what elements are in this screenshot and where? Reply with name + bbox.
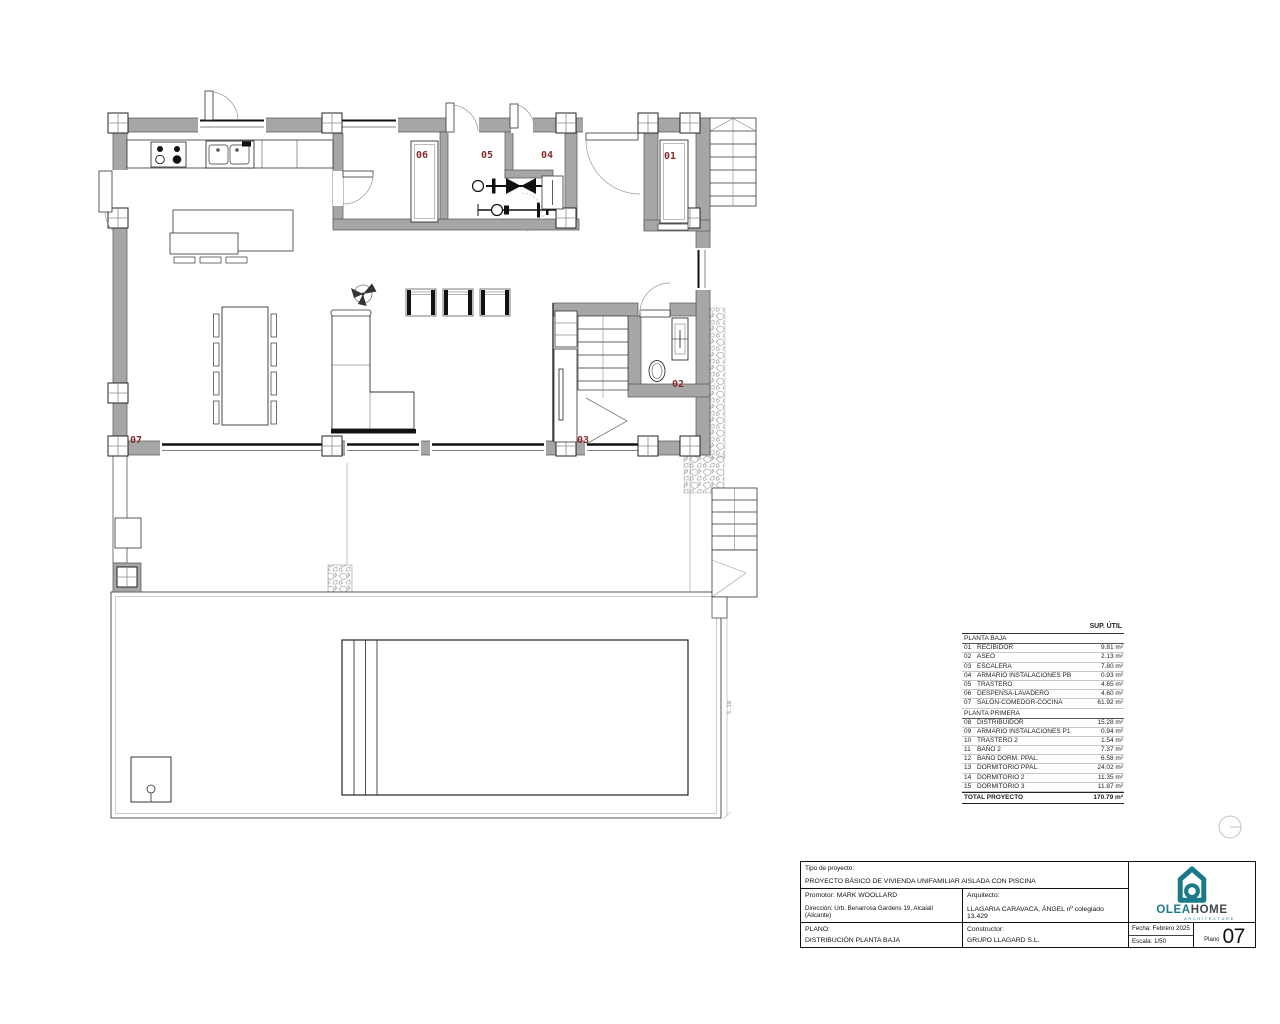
kitchen-island	[170, 210, 293, 263]
door-leaf-04	[510, 104, 518, 128]
reference-circle	[1219, 816, 1241, 838]
address-value: Dirección: Urb. Benarrosa Gardens 19, Al…	[805, 905, 958, 919]
project-type-value: PROYECTO BÁSICO DE VIVIENDA UNIFAMILIAR …	[805, 878, 1124, 885]
planter	[115, 518, 141, 548]
room-label-04: 04	[541, 150, 553, 161]
area-row-value: 11.35 m²	[1080, 774, 1124, 782]
area-row-number: 09	[962, 728, 977, 736]
area-table-row: 10TRASTERO 21.54 m²	[962, 737, 1124, 746]
title-block: Tipo de proyecto: PROYECTO BÁSICO DE VIV…	[800, 861, 1256, 948]
gravel-hatch-terrace	[328, 565, 352, 592]
stool	[174, 257, 195, 263]
ceiling-fan-icon	[351, 284, 377, 307]
section-title: PLANTA BAJA	[962, 634, 1124, 644]
area-row-name: ASEO	[977, 653, 1080, 661]
area-row-name: DORMITORIO 2	[977, 774, 1080, 782]
area-row-name: ARMARIO INSTALACIONES P1	[977, 728, 1080, 736]
promoter-cell: Promotor: MARK WOOLLARD Dirección: Urb. …	[801, 889, 963, 923]
armchair	[443, 289, 473, 316]
area-table-row: 05TRASTERO4.65 m²	[962, 681, 1124, 690]
area-row-value: 2.13 m²	[1080, 653, 1124, 661]
sheet-number: 07	[1223, 927, 1245, 946]
stool	[200, 257, 221, 263]
stool	[226, 257, 247, 263]
area-row-name: SALÓN-COMEDOR-COCINA	[977, 699, 1080, 707]
architect-cell: Arquitecto: LLAGARIA CARAVACA, ÁNGEL nº …	[963, 889, 1129, 923]
area-row-name: BAÑO 2	[977, 746, 1080, 754]
tv-icon	[559, 369, 563, 420]
logo-wordmark: OLEAHOME	[1156, 905, 1227, 916]
area-table-row: 09ARMARIO INSTALACIONES P10.94 m²	[962, 728, 1124, 737]
wall-utility-right	[565, 132, 577, 219]
area-table-row: 03ESCALERA7.80 m²	[962, 663, 1124, 672]
area-table-row: 14DORMITORIO 211.35 m²	[962, 774, 1124, 783]
area-table-row: 02ASEO2.13 m²	[962, 653, 1124, 662]
dining-table	[214, 307, 277, 425]
area-table-row: 07SALÓN-COMEDOR-COCINA61.92 m²	[962, 699, 1124, 708]
armchair	[406, 289, 436, 316]
date-value: Fecha: Febrero 2025	[1129, 923, 1193, 936]
area-row-name: BAÑO DORM. PPAL.	[977, 755, 1080, 763]
wall-stair-aseo	[628, 316, 641, 391]
gravel-hatch-east	[710, 308, 725, 458]
constructor-label: Constructor:	[967, 926, 1124, 933]
section-rows: 08DISTRIBUIDOR15.28 m²09ARMARIO INSTALAC…	[962, 719, 1124, 793]
tv-unit	[554, 311, 577, 442]
area-table-row: 15DORMITORIO 311.87 m²	[962, 783, 1124, 792]
area-row-name: RECIBIDOR	[977, 644, 1080, 652]
company-logo: OLEAHOME ARCHITECTURE	[1129, 862, 1255, 923]
sheet-title-cell: PLANO: DISTRIBUCIÓN PLANTA BAJA	[801, 923, 963, 947]
date-scale-cell: Fecha: Febrero 2025 Escala: 1/50	[1129, 923, 1194, 947]
total-label: TOTAL PROYECTO	[962, 794, 1076, 802]
dimension-label: 5.18	[727, 701, 733, 714]
armchairs	[406, 289, 510, 316]
area-row-value: 7.80 m²	[1080, 663, 1124, 671]
area-table-row: 13DORMITORIO PPAL.24.02 m²	[962, 764, 1124, 773]
toilet-icon	[649, 361, 665, 382]
project-type-label: Tipo de proyecto:	[805, 865, 1124, 872]
wall-divider-06-05	[440, 132, 448, 219]
area-row-name: ESCALERA	[977, 663, 1080, 671]
promoter-value: Promotor: MARK WOOLLARD	[805, 892, 958, 899]
area-row-number: 03	[962, 663, 977, 671]
sheet-title-value: DISTRIBUCIÓN PLANTA BAJA	[805, 937, 958, 944]
area-row-number: 02	[962, 653, 977, 661]
house-logo-icon	[1163, 863, 1221, 903]
architect-label: Arquitecto:	[967, 892, 1124, 899]
area-table-total-row: TOTAL PROYECTO 170.79 m²	[962, 792, 1124, 804]
constructor-cell: Constructor: GRUPO LLAGARD S.L.	[963, 923, 1129, 947]
area-row-number: 13	[962, 764, 977, 772]
section-rows: 01RECIBIDOR9.81 m²02ASEO2.13 m²03ESCALER…	[962, 644, 1124, 708]
wall-entry-left	[644, 132, 658, 230]
area-row-name: ARMARIO INSTALACIONES PB	[977, 672, 1080, 680]
area-row-value: 7.37 m²	[1080, 746, 1124, 754]
area-table-section-planta-primera: PLANTA PRIMERA 08DISTRIBUIDOR15.28 m²09A…	[962, 709, 1124, 793]
room-label-07: 07	[130, 435, 142, 446]
area-table-row: 11BAÑO 27.37 m²	[962, 746, 1124, 755]
area-row-name: DESPENSA-LAVADERO	[977, 690, 1080, 698]
door-leaf-entrance	[586, 133, 638, 140]
area-row-value: 1.54 m²	[1080, 737, 1124, 745]
area-row-name: TRASTERO 2	[977, 737, 1080, 745]
total-value: 170.79 m²	[1076, 794, 1124, 802]
door-leaf-west	[99, 171, 112, 212]
logo-tagline: ARCHITECTURE	[1149, 916, 1235, 921]
area-row-number: 11	[962, 746, 977, 754]
area-row-value: 4.60 m²	[1080, 690, 1124, 698]
sofa	[331, 310, 416, 434]
outdoor-shower	[131, 757, 171, 802]
architect-value: LLAGARIA CARAVACA, ÁNGEL nº colegiado 13…	[967, 906, 1124, 920]
door-leaf-05	[446, 103, 454, 132]
door-leaf-kitchen	[205, 91, 213, 120]
door-leaf-06	[343, 171, 373, 177]
area-row-value: 9.81 m²	[1080, 644, 1124, 652]
area-table: SUP. ÚTIL PLANTA BAJA 01RECIBIDOR9.81 m²…	[962, 623, 1124, 804]
area-table-row: 08DISTRIBUIDOR15.28 m²	[962, 719, 1124, 728]
area-row-value: 24.02 m²	[1080, 764, 1124, 772]
wall-left	[113, 118, 127, 455]
section-title: PLANTA PRIMERA	[962, 709, 1124, 719]
exterior-stair-top	[710, 118, 756, 206]
area-row-value: 4.65 m²	[1080, 681, 1124, 689]
stair-direction-arrow	[586, 398, 627, 444]
area-row-number: 06	[962, 690, 977, 698]
area-row-name: TRASTERO	[977, 681, 1080, 689]
area-table-row: 06DESPENSA-LAVADERO4.60 m²	[962, 690, 1124, 699]
area-row-value: 0.93 m²	[1080, 672, 1124, 680]
area-row-name: DORMITORIO 3	[977, 783, 1080, 791]
area-row-value: 0.94 m²	[1080, 728, 1124, 736]
area-row-value: 15.28 m²	[1080, 719, 1124, 727]
stove-icon	[151, 142, 186, 167]
area-row-number: 14	[962, 774, 977, 782]
room-label-02: 02	[672, 379, 684, 390]
sink-icon	[206, 141, 254, 168]
area-row-number: 04	[962, 672, 977, 680]
area-row-number: 01	[962, 644, 977, 652]
room-label-06: 06	[416, 150, 428, 161]
constructor-value: GRUPO LLAGARD S.L.	[967, 937, 1124, 944]
pool	[342, 640, 688, 795]
room-label-01: 01	[664, 151, 676, 162]
area-row-number: 07	[962, 699, 977, 707]
area-table-header: SUP. ÚTIL	[962, 623, 1124, 634]
sheet-number-label: Plano	[1204, 937, 1219, 943]
area-row-number: 08	[962, 719, 977, 727]
exterior-stair-right	[712, 488, 757, 618]
area-row-value: 61.92 m²	[1080, 699, 1124, 707]
wall-aseo-bottom	[628, 384, 710, 397]
wall-stair-top-b	[670, 303, 696, 316]
area-table-section-planta-baja: PLANTA BAJA 01RECIBIDOR9.81 m²02ASEO2.13…	[962, 634, 1124, 708]
logo-part1: OLEA	[1156, 904, 1190, 916]
scale-value: Escala: 1/50	[1129, 936, 1193, 947]
area-table-row: 01RECIBIDOR9.81 m²	[962, 644, 1124, 653]
staircase	[578, 316, 628, 444]
area-row-number: 05	[962, 681, 977, 689]
area-row-value: 6.58 m²	[1080, 755, 1124, 763]
area-row-name: DISTRIBUIDOR	[977, 719, 1080, 727]
water-heater	[542, 176, 563, 209]
area-row-number: 10	[962, 737, 977, 745]
area-table-row: 12BAÑO DORM. PPAL.6.58 m²	[962, 755, 1124, 764]
area-table-row: 04ARMARIO INSTALACIONES PB0.93 m²	[962, 672, 1124, 681]
door-leaf-aseo	[640, 310, 670, 317]
sheet-title-label: PLANO:	[805, 926, 958, 933]
room-label-03: 03	[577, 435, 589, 446]
area-row-value: 11.87 m²	[1080, 783, 1124, 791]
room-label-05: 05	[481, 150, 493, 161]
area-row-name: DORMITORIO PPAL.	[977, 764, 1080, 772]
area-row-number: 12	[962, 755, 977, 763]
area-row-number: 15	[962, 783, 977, 791]
logo-part2: HOME	[1191, 904, 1228, 916]
armchair	[480, 289, 510, 316]
washbasin-icon	[672, 318, 688, 360]
sheet-number-cell: Plano 07	[1194, 923, 1255, 947]
project-type-cell: Tipo de proyecto: PROYECTO BÁSICO DE VIV…	[801, 862, 1129, 889]
